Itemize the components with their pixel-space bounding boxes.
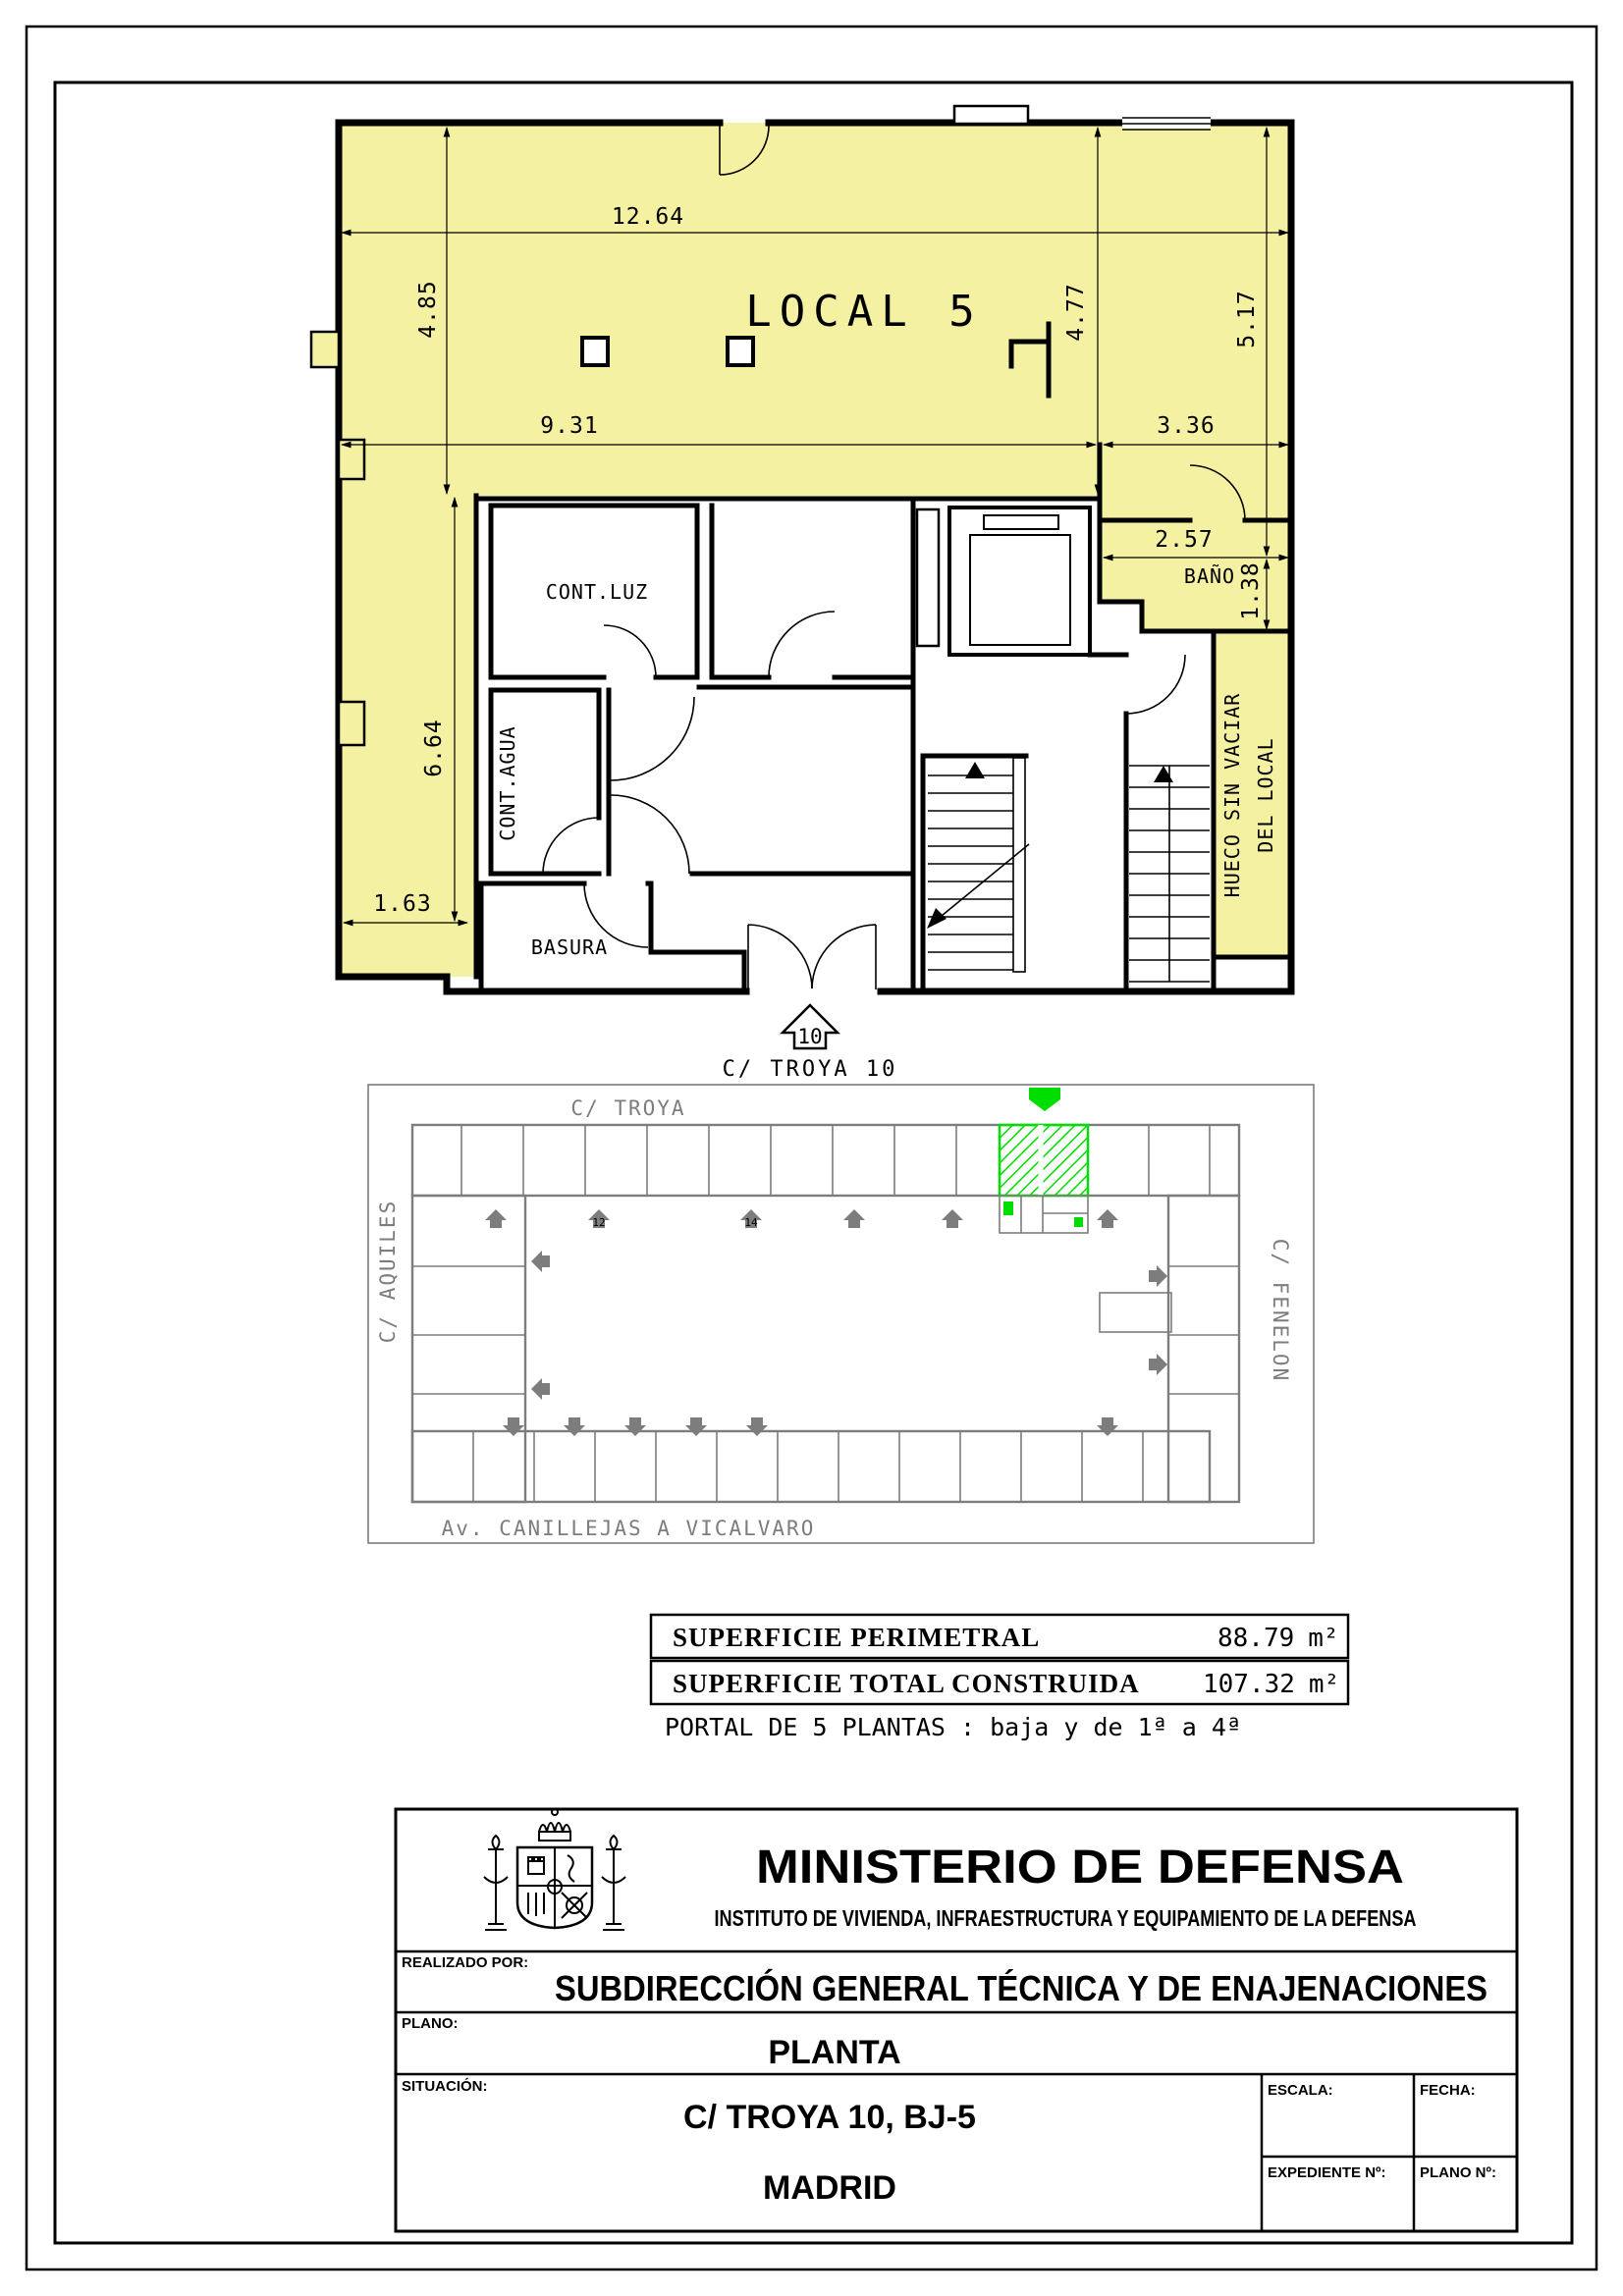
situacion-label: SITUACIÓN:	[402, 2077, 488, 2095]
wall-notch	[339, 702, 364, 745]
label-cont-luz: CONT.LUZ	[546, 580, 648, 604]
dim-bano-height: 1.38	[1238, 561, 1264, 619]
dim-left-strip-width: 1.63	[373, 891, 431, 917]
dim-upper-left-height: 4.85	[415, 280, 441, 338]
table-row-value: 88.79m²	[1217, 1624, 1339, 1653]
entrance-marker: 10 C/ TROYA 10	[723, 1005, 898, 1082]
table-row-label: SUPERFICIE TOTAL CONSTRUIDA	[673, 1669, 1140, 1698]
label-basura: BASURA	[531, 935, 608, 959]
street-bottom: Av. CANILLEJAS A VICALVARO	[442, 1517, 816, 1540]
label-bano: BAÑO	[1184, 564, 1235, 588]
entrance-street: C/ TROYA 10	[723, 1057, 898, 1082]
escala-label: ESCALA:	[1268, 2082, 1333, 2099]
table-row-label: SUPERFICIE PERIMETRAL	[673, 1623, 1040, 1652]
portal-number: 12	[592, 1216, 605, 1229]
dim-right-height: 5.17	[1234, 290, 1260, 347]
drawing-sheet: 12.64 4.85 9.31 3.36 4.77 5.17 2.57 1.38…	[0, 0, 1623, 2296]
elevator-icon	[917, 507, 1090, 655]
label-hueco-line2: DEL LOCAL	[1254, 737, 1277, 852]
institute-subtitle: INSTITUTO DE VIVIENDA, INFRAESTRUCTURA Y…	[715, 1905, 1417, 1931]
summary-table: SUPERFICIE PERIMETRAL 88.79m² SUPERFICIE…	[651, 1615, 1348, 1741]
situacion-city: MADRID	[763, 2169, 896, 2207]
label-hueco-line1: HUECO SIN VACIAR	[1220, 693, 1244, 898]
wall-notch	[311, 332, 339, 367]
site-building	[412, 1125, 1239, 1502]
fecha-label: FECHA:	[1420, 2082, 1476, 2099]
green-location-marker	[1029, 1088, 1060, 1111]
plano-label: PLANO:	[402, 2015, 459, 2032]
floor-plan: 12.64 4.85 9.31 3.36 4.77 5.17 2.57 1.38…	[311, 106, 1291, 1082]
courtyard-annex	[1100, 1293, 1171, 1332]
local-highlight	[339, 123, 1291, 977]
portal-icons: 12 14	[485, 1209, 1167, 1436]
dim-left-strip-height: 6.64	[421, 719, 447, 776]
street-left: C/ AQUILES	[376, 1200, 400, 1343]
street-top: C/ TROYA	[570, 1096, 685, 1120]
street-right: C/ FENELON	[1269, 1239, 1292, 1382]
dim-mid-width: 9.31	[540, 413, 598, 439]
plano-value: PLANTA	[768, 2034, 900, 2071]
entrance-number: 10	[797, 1025, 822, 1048]
local-title: LOCAL 5	[745, 287, 982, 337]
realizado-label: REALIZADO POR:	[402, 1954, 528, 1971]
realizado-value: SUBDIRECCIÓN GENERAL TÉCNICA Y DE ENAJEN…	[555, 1967, 1488, 2008]
stair-arrow-icon	[927, 908, 947, 929]
table-row-value: 107.32m²	[1203, 1670, 1339, 1699]
portal-number: 14	[744, 1216, 758, 1229]
duct-shaft	[917, 509, 939, 646]
stair-arrow-icon	[965, 762, 985, 778]
site-plan: 12 14 C/ TROYA C/ AQUILES C/ FENELON Av.…	[368, 1085, 1314, 1543]
blueprint-canvas: 12.64 4.85 9.31 3.36 4.77 5.17 2.57 1.38…	[0, 0, 1623, 2296]
dim-corridor-width: 3.36	[1157, 413, 1215, 439]
column	[582, 338, 608, 365]
table-note: PORTAL DE 5 PLANTAS : baja y de 1ª a 4ª	[665, 1713, 1241, 1741]
dim-mid-right-height: 4.77	[1063, 283, 1089, 341]
dim-top-width: 12.64	[612, 204, 684, 230]
plano-num-label: PLANO Nº:	[1420, 2164, 1496, 2181]
expediente-label: EXPEDIENTE Nº:	[1268, 2164, 1386, 2181]
dim-bano-width: 2.57	[1155, 527, 1213, 553]
column	[728, 338, 753, 365]
site-highlight-unit	[1000, 1088, 1088, 1233]
label-cont-agua: CONT.AGUA	[496, 725, 519, 840]
situacion-address: C/ TROYA 10, BJ-5	[683, 2099, 976, 2136]
wall-notch	[339, 440, 364, 479]
roof-hatch	[954, 106, 1028, 124]
stair-arrow-icon	[1154, 766, 1173, 782]
ministry-title: MINISTERIO DE DEFENSA	[756, 1842, 1404, 1894]
title-block: MINISTERIO DE DEFENSA INSTITUTO DE VIVIE…	[396, 1809, 1517, 2231]
coat-of-arms-icon	[484, 1809, 625, 1930]
stairs-icon	[927, 758, 1210, 982]
